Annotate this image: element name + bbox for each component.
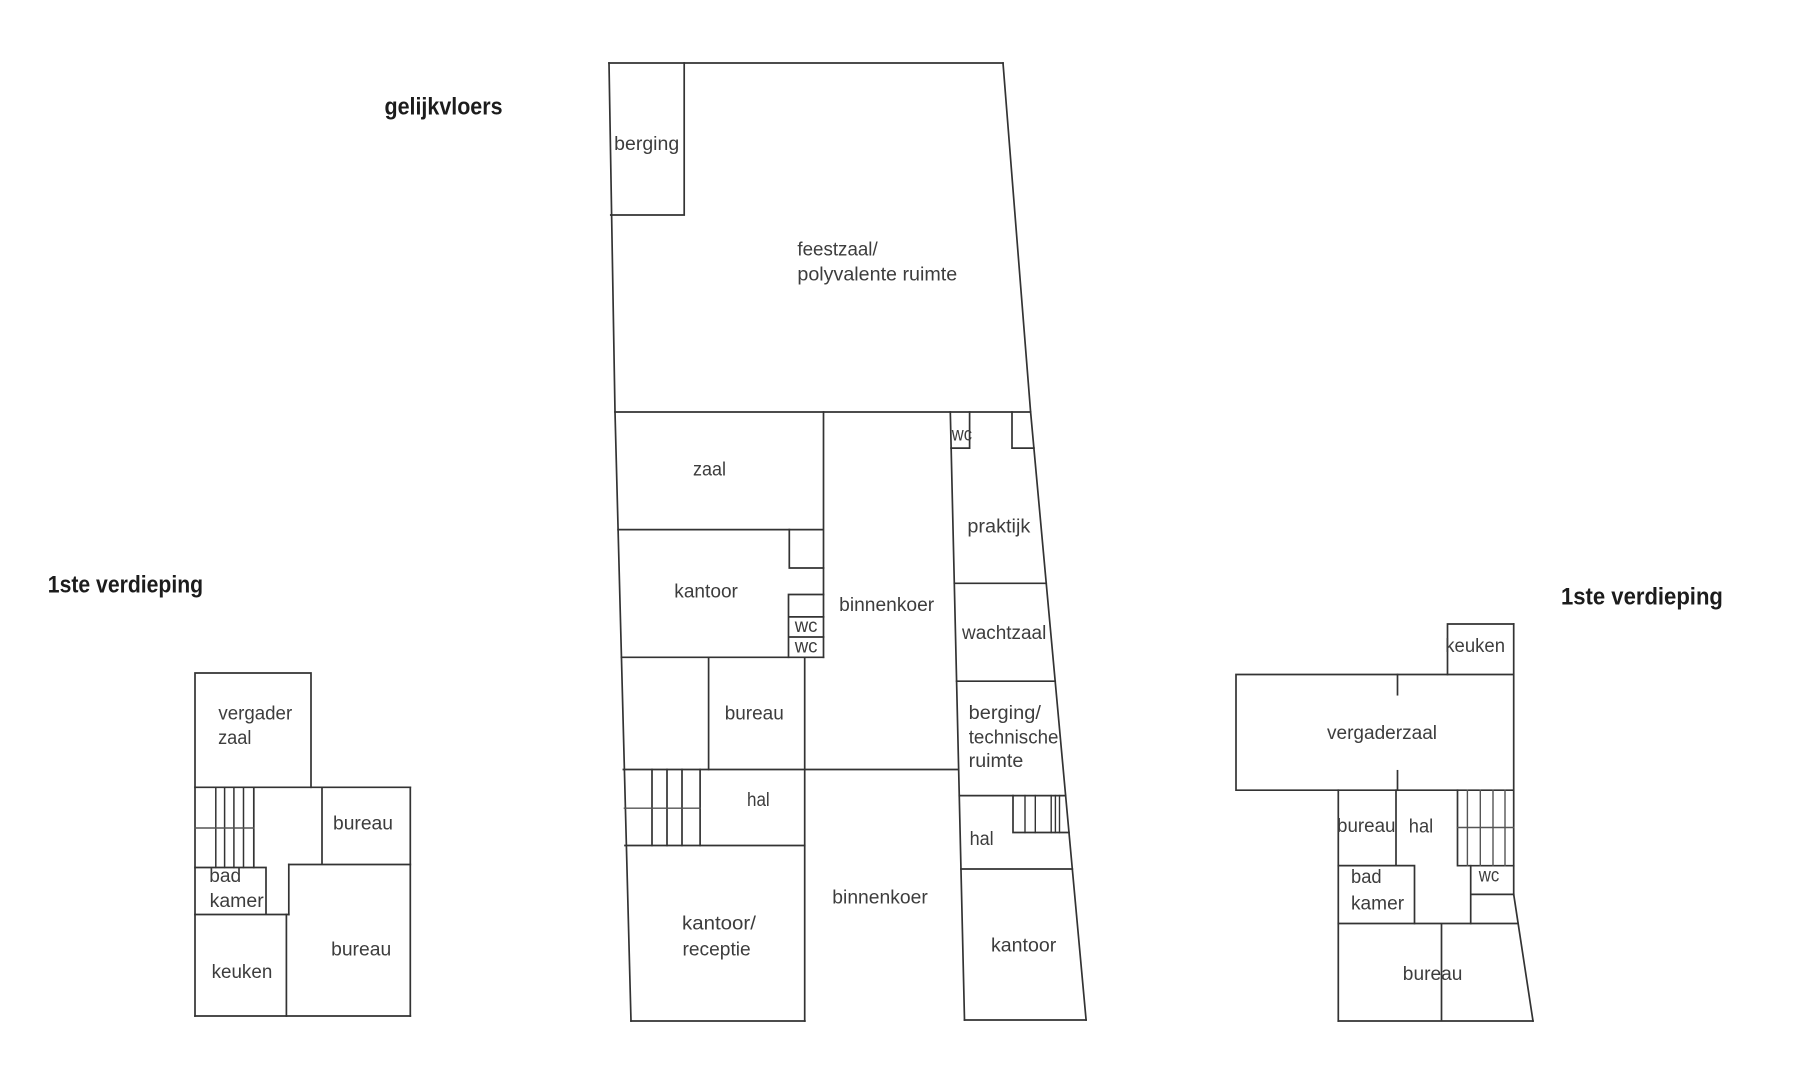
svg-text:wc: wc	[1478, 865, 1499, 886]
svg-text:vergaderzaal: vergaderzaal	[1327, 723, 1437, 744]
svg-text:kantoor/: kantoor/	[682, 914, 757, 935]
svg-text:kamer: kamer	[1351, 894, 1405, 915]
svg-text:hal: hal	[970, 829, 994, 850]
svg-text:bureau: bureau	[1403, 964, 1463, 985]
svg-text:bureau: bureau	[331, 940, 391, 961]
svg-text:1ste verdieping: 1ste verdieping	[48, 571, 203, 598]
svg-text:keuken: keuken	[1445, 636, 1505, 657]
svg-text:zaal: zaal	[693, 459, 726, 480]
svg-text:kantoor: kantoor	[674, 582, 738, 603]
svg-text:ruimte: ruimte	[969, 751, 1024, 772]
svg-text:berging/: berging/	[969, 703, 1042, 724]
svg-text:binnenkoer: binnenkoer	[832, 887, 928, 908]
svg-text:bureau: bureau	[333, 814, 393, 835]
svg-text:gelijkvloers: gelijkvloers	[385, 94, 503, 121]
svg-text:receptie: receptie	[683, 939, 751, 960]
svg-text:technische: technische	[969, 728, 1059, 749]
svg-text:wachtzaal: wachtzaal	[961, 623, 1046, 644]
svg-text:bureau: bureau	[1337, 816, 1396, 837]
svg-text:kamer: kamer	[210, 891, 265, 912]
svg-text:hal: hal	[1409, 817, 1433, 838]
svg-text:1ste verdieping: 1ste verdieping	[1561, 584, 1723, 611]
svg-text:bad: bad	[1351, 867, 1382, 888]
svg-text:praktijk: praktijk	[967, 516, 1030, 537]
svg-text:kantoor: kantoor	[991, 936, 1057, 957]
svg-text:vergader: vergader	[218, 704, 292, 725]
svg-text:wc: wc	[794, 616, 818, 637]
svg-text:binnenkoer: binnenkoer	[839, 595, 935, 616]
svg-text:berging: berging	[614, 134, 679, 155]
svg-text:hal: hal	[747, 790, 770, 811]
svg-text:wc: wc	[951, 425, 972, 446]
svg-text:wc: wc	[794, 637, 818, 658]
svg-text:bureau: bureau	[725, 703, 784, 724]
svg-text:keuken: keuken	[212, 962, 273, 983]
svg-text:polyvalente ruimte: polyvalente ruimte	[797, 265, 957, 286]
svg-text:feestzaal/: feestzaal/	[797, 240, 878, 261]
svg-text:zaal: zaal	[218, 728, 251, 749]
svg-text:bad: bad	[209, 866, 241, 887]
